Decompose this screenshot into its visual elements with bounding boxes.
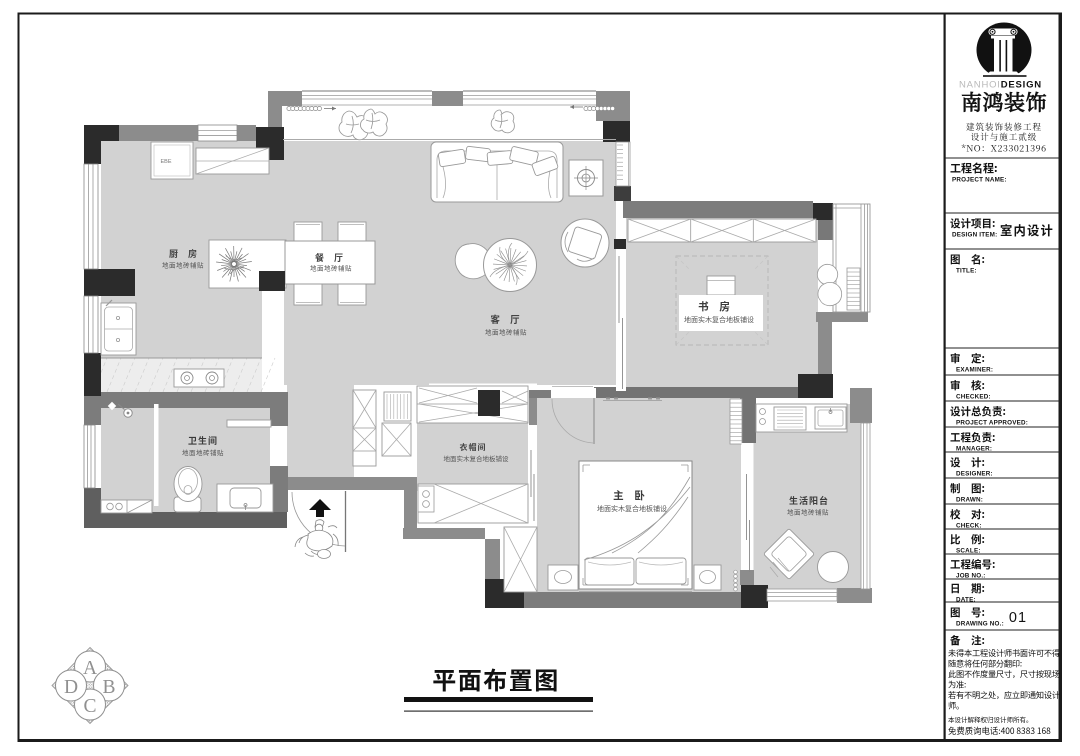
svg-text:A: A xyxy=(83,658,97,679)
svg-text:地面地砖铺贴: 地面地砖铺贴 xyxy=(182,447,224,457)
svg-text:DATE:: DATE: xyxy=(956,597,976,604)
svg-text:制 图:: 制 图: xyxy=(950,481,985,496)
svg-text:地面地砖辅贴: 地面地砖辅贴 xyxy=(310,263,352,273)
svg-text:EBE: EBE xyxy=(160,159,171,165)
svg-text:工程编号:: 工程编号: xyxy=(950,557,995,572)
svg-text:审 核:: 审 核: xyxy=(950,378,985,393)
svg-text:平面布置图: 平面布置图 xyxy=(432,661,560,696)
svg-text:校 对:: 校 对: xyxy=(950,507,985,522)
svg-text:DESIGNER:: DESIGNER: xyxy=(956,471,993,478)
svg-text:图 名:: 图 名: xyxy=(950,252,985,267)
svg-text:地面实木复合地板铺设: 地面实木复合地板铺设 xyxy=(684,315,754,325)
svg-text:师。: 师。 xyxy=(948,700,964,712)
svg-text:地面实木复合地板铺设: 地面实木复合地板铺设 xyxy=(597,504,667,514)
svg-text:CHECKED:: CHECKED: xyxy=(956,394,991,401)
svg-text:比 例:: 比 例: xyxy=(950,532,985,547)
svg-text:地面地砖辅贴: 地面地砖辅贴 xyxy=(485,327,527,337)
svg-text:JOB NO.:: JOB NO.: xyxy=(956,573,986,580)
svg-text:PROJECT APPROVED:: PROJECT APPROVED: xyxy=(956,420,1028,427)
svg-text:图 号:: 图 号: xyxy=(950,605,985,620)
svg-text:厨 房: 厨 房 xyxy=(169,247,199,260)
svg-text:日 期:: 日 期: xyxy=(950,581,985,596)
svg-text:EXAMINER:: EXAMINER: xyxy=(956,367,993,374)
svg-text:MANAGER:: MANAGER: xyxy=(956,446,992,453)
svg-text:工程名程:: 工程名程: xyxy=(950,160,998,176)
svg-text:SCALE:: SCALE: xyxy=(956,548,981,555)
svg-text:B: B xyxy=(102,677,115,698)
svg-text:DRAWN:: DRAWN: xyxy=(956,497,983,504)
svg-text:卫生间: 卫生间 xyxy=(188,434,218,447)
svg-text:TITLE:: TITLE: xyxy=(956,268,977,275)
svg-text:主 卧: 主 卧 xyxy=(613,488,647,503)
svg-text:审 定:: 审 定: xyxy=(950,351,985,366)
svg-text:书 房: 书 房 xyxy=(698,299,732,314)
svg-text:地面地砖铺贴: 地面地砖铺贴 xyxy=(787,507,829,517)
svg-text:本设计解释权归设计师所有。: 本设计解释权归设计师所有。 xyxy=(948,714,1033,724)
svg-text:设 计:: 设 计: xyxy=(950,455,985,470)
svg-text:设计项目:: 设计项目: xyxy=(950,216,995,231)
svg-text:工程负责:: 工程负责: xyxy=(950,430,995,445)
svg-text:生活阳台: 生活阳台 xyxy=(789,494,829,507)
svg-text:地面地砖辅贴: 地面地砖辅贴 xyxy=(162,260,204,270)
svg-text:设计总负责:: 设计总负责: xyxy=(950,404,1006,419)
svg-text:PROJECT NAME:: PROJECT NAME: xyxy=(952,177,1007,184)
svg-text:地面实木复合地板铺设: 地面实木复合地板铺设 xyxy=(444,453,510,463)
svg-text:室内设计: 室内设计 xyxy=(1000,221,1054,239)
svg-text:C: C xyxy=(83,696,96,717)
svg-text:南鸿装饰: 南鸿装饰 xyxy=(961,87,1047,117)
svg-text:若有不明之处，应立即通知设计: 若有不明之处，应立即通知设计 xyxy=(948,689,1060,701)
svg-text:*NO：X233021396: *NO：X233021396 xyxy=(961,142,1046,155)
svg-text:免费质询电话:400 8383 168: 免费质询电话:400 8383 168 xyxy=(948,725,1051,737)
svg-text:DESIGN ITEM:: DESIGN ITEM: xyxy=(952,232,997,239)
svg-text:01: 01 xyxy=(1009,610,1027,626)
svg-text:D: D xyxy=(64,677,78,698)
svg-text:CHECK:: CHECK: xyxy=(956,523,982,530)
svg-text:客 厅: 客 厅 xyxy=(490,312,521,326)
svg-text:DRAWING NO.:: DRAWING NO.: xyxy=(956,621,1004,628)
svg-text:衣帽间: 衣帽间 xyxy=(460,442,487,453)
svg-text:备 注:: 备 注: xyxy=(950,633,985,648)
